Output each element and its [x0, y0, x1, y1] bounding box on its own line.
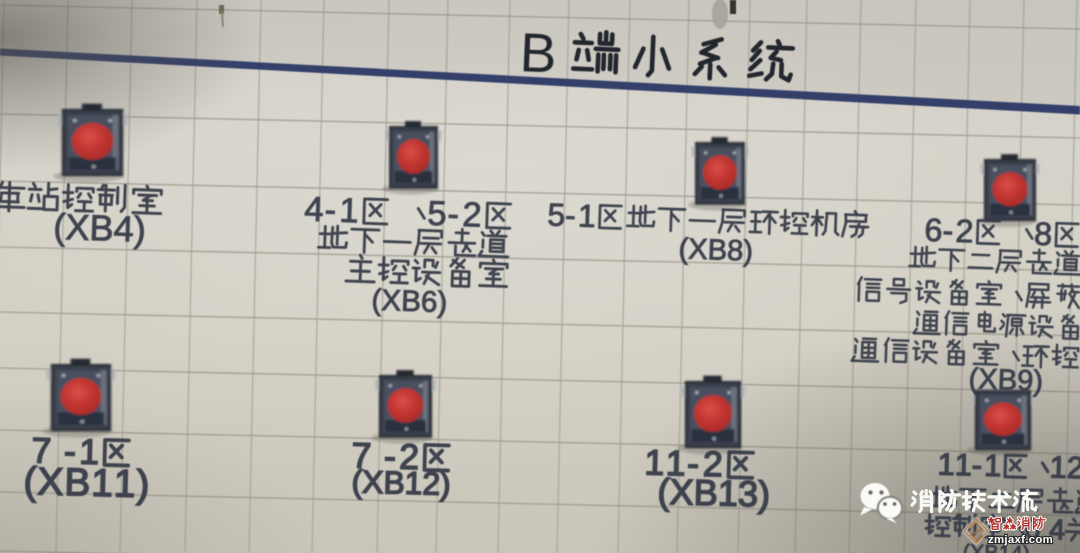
- svg-text:1: 1: [937, 447, 955, 482]
- svg-text:9: 9: [1017, 365, 1034, 398]
- svg-text:-: -: [447, 195, 460, 233]
- svg-text:B: B: [707, 234, 728, 267]
- svg-text:): ): [437, 286, 448, 319]
- svg-text:4: 4: [304, 191, 325, 230]
- svg-text:): ): [1033, 365, 1044, 397]
- svg-text:-: -: [565, 197, 577, 233]
- svg-text:X: X: [37, 460, 64, 504]
- svg-text:B: B: [997, 364, 1018, 397]
- svg-text:): ): [743, 235, 754, 267]
- svg-text:-: -: [324, 191, 337, 229]
- svg-text:-: -: [971, 447, 982, 482]
- svg-text:X: X: [362, 464, 384, 501]
- svg-text:zmjaxf.com: zmjaxf.com: [988, 534, 1053, 546]
- svg-text:1: 1: [954, 447, 972, 482]
- svg-text:1: 1: [984, 448, 1002, 483]
- svg-text:): ): [133, 209, 146, 250]
- svg-text:6: 6: [420, 285, 438, 319]
- svg-text:1: 1: [577, 197, 596, 234]
- svg-text:1: 1: [1049, 449, 1067, 484]
- svg-text:5: 5: [427, 195, 448, 234]
- svg-text:B: B: [64, 461, 91, 505]
- svg-text:2: 2: [955, 213, 974, 250]
- svg-text:): ): [136, 463, 150, 506]
- svg-text:4: 4: [113, 208, 135, 250]
- svg-text:B: B: [383, 464, 405, 501]
- svg-text:(: (: [23, 460, 37, 503]
- svg-text:B: B: [519, 21, 558, 85]
- svg-text:1: 1: [717, 472, 738, 514]
- svg-text:(: (: [657, 471, 670, 512]
- svg-text:2: 2: [1066, 450, 1080, 485]
- svg-text:5: 5: [547, 196, 566, 233]
- svg-text:X: X: [978, 364, 999, 397]
- svg-text:6: 6: [924, 212, 943, 249]
- svg-text:X: X: [669, 471, 694, 513]
- svg-text:2: 2: [422, 465, 441, 501]
- svg-text:B: B: [693, 472, 718, 514]
- svg-text:X: X: [381, 284, 402, 318]
- svg-text:-: -: [942, 212, 954, 248]
- svg-text:): ): [440, 466, 452, 502]
- svg-text:3: 3: [737, 473, 758, 515]
- svg-text:): ): [758, 473, 771, 514]
- svg-text:X: X: [688, 234, 709, 267]
- svg-text:8: 8: [727, 235, 744, 268]
- svg-text:1: 1: [339, 192, 360, 231]
- svg-text:8: 8: [1033, 216, 1052, 253]
- svg-text:2: 2: [462, 196, 483, 235]
- svg-text:X: X: [65, 206, 91, 248]
- svg-text:B: B: [401, 285, 422, 319]
- svg-text:1: 1: [404, 465, 423, 501]
- svg-text:B: B: [89, 207, 115, 249]
- svg-text:1: 1: [91, 462, 114, 506]
- svg-text:1: 1: [113, 462, 136, 506]
